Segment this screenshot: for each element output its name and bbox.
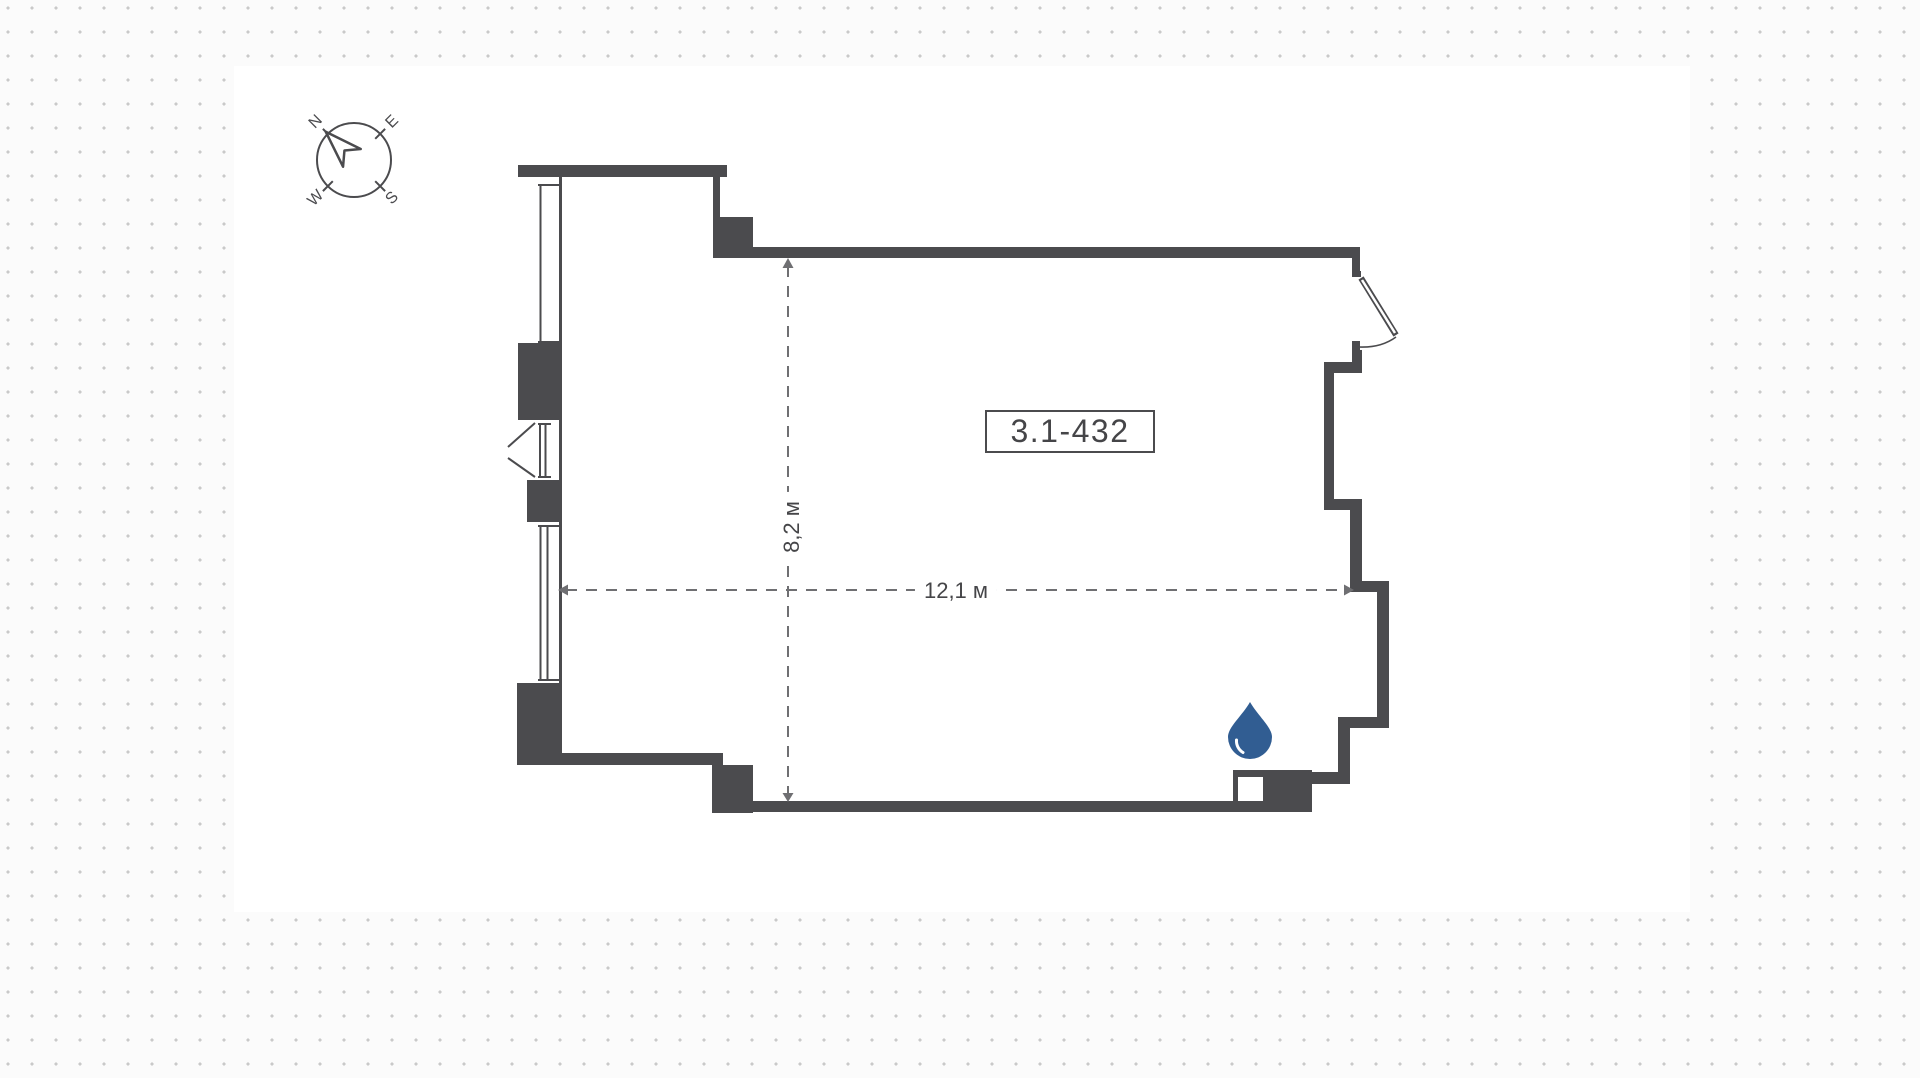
window-left-top xyxy=(538,185,561,342)
floor-plan-drawing: N E S W xyxy=(0,0,1920,1078)
entrance-door xyxy=(1359,278,1396,347)
compass-label-e: E xyxy=(382,112,402,132)
dimension-depth-label: 8,2 м xyxy=(778,492,806,562)
dimension-width-label: 12,1 м xyxy=(915,577,997,605)
floor-plan-canvas: N E S W xyxy=(0,0,1920,1078)
compass: N E S W xyxy=(266,74,440,248)
room-area[interactable] xyxy=(562,258,1338,801)
compass-label-n: N xyxy=(306,112,326,132)
window-left-bottom xyxy=(538,525,561,681)
balcony-door-swing-upper xyxy=(508,423,535,447)
balcony-door-swing-lower xyxy=(508,458,535,477)
room-number-label[interactable]: 3.1-432 xyxy=(985,410,1155,453)
compass-label-s: S xyxy=(382,188,402,208)
balcony-door xyxy=(508,423,551,477)
door-swing-arc xyxy=(1359,337,1396,347)
